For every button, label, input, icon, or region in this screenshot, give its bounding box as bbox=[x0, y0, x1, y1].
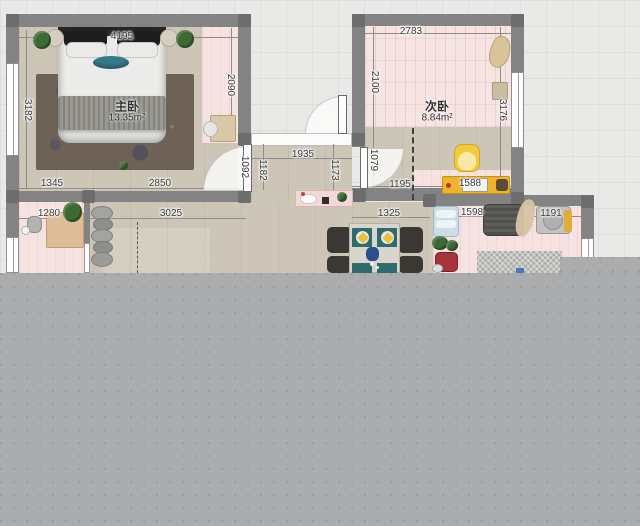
dim-hall-left: 1182 bbox=[257, 159, 267, 181]
plant-cluster bbox=[446, 240, 458, 251]
bed-pillow bbox=[66, 42, 107, 58]
dining-chair[interactable] bbox=[398, 227, 423, 253]
room-area-secondary: 8.84m² bbox=[421, 113, 452, 124]
dim-master-bottom-left: 1345 bbox=[41, 179, 63, 189]
entry-threshold bbox=[251, 133, 352, 146]
sofa-cushion bbox=[436, 210, 456, 218]
table-decor-dot bbox=[370, 262, 374, 266]
desk-red-dot bbox=[446, 183, 451, 188]
dim-lower-room-left: 1598 bbox=[461, 208, 483, 218]
dim-living: 3025 bbox=[160, 209, 182, 219]
dim-secondary-top: 2783 bbox=[400, 27, 422, 37]
wall-joint bbox=[82, 190, 95, 203]
wall-joint bbox=[511, 14, 524, 27]
canvas-cutoff-overlay bbox=[0, 273, 640, 526]
wall-master-top[interactable] bbox=[6, 14, 251, 27]
dim-balcony: 1280 bbox=[38, 209, 60, 219]
canvas-cutoff-overlay-right bbox=[560, 257, 640, 273]
dim-secondary-right: 3176 bbox=[497, 99, 507, 121]
wall-joint bbox=[238, 14, 251, 27]
dining-chair[interactable] bbox=[398, 256, 423, 273]
dim-master-left: 3182 bbox=[22, 99, 32, 121]
balcony-plant[interactable] bbox=[63, 202, 82, 222]
table-decor-dot bbox=[376, 266, 379, 269]
wall-joint bbox=[423, 194, 436, 207]
balcony-sliding-door[interactable] bbox=[84, 243, 90, 273]
dim-hall-top: 1935 bbox=[292, 150, 314, 160]
door-entry[interactable] bbox=[338, 95, 347, 134]
wall-joint bbox=[6, 190, 19, 203]
dim-line bbox=[365, 33, 511, 34]
living-rug[interactable] bbox=[103, 228, 210, 273]
side-table bbox=[432, 264, 443, 273]
window-lower-left[interactable] bbox=[6, 237, 19, 273]
wall-master-bottom[interactable] bbox=[6, 191, 251, 202]
cabinet-plant bbox=[337, 192, 347, 202]
wall-master-right[interactable] bbox=[238, 27, 251, 145]
window-master-left[interactable] bbox=[6, 63, 19, 156]
dim-secondary-left: 2100 bbox=[369, 71, 379, 93]
vanity-chair[interactable] bbox=[203, 121, 218, 137]
table-centerpiece bbox=[366, 247, 379, 261]
wall-secondary-left[interactable] bbox=[352, 26, 365, 147]
accent-pillow bbox=[93, 56, 129, 69]
room-area-master: 13.35m² bbox=[109, 113, 146, 124]
storage-box bbox=[492, 82, 508, 100]
wall-joint bbox=[352, 133, 365, 146]
dim-dining: 1325 bbox=[378, 209, 400, 219]
wall-joint bbox=[6, 14, 19, 27]
plant[interactable] bbox=[33, 31, 51, 49]
wall-joint bbox=[581, 195, 594, 208]
desk-chair-seat bbox=[458, 152, 476, 170]
dim-master-bottom-right: 2850 bbox=[149, 179, 171, 189]
dim-secondary-bottom-right: 1588 bbox=[459, 179, 481, 189]
floorplan-canvas: 主卧 13.35m² 次卧 8.84m² 4195 3182 2090 1345… bbox=[0, 0, 640, 526]
dim-master-top: 4195 bbox=[111, 32, 133, 42]
kitchen-appliance[interactable] bbox=[91, 252, 113, 267]
wall-joint bbox=[352, 14, 365, 27]
zone-divider-dashed bbox=[412, 128, 414, 200]
door-secondary-bedroom[interactable] bbox=[360, 147, 368, 189]
dim-master-right-inner: 2090 bbox=[225, 74, 235, 96]
desk-cup bbox=[496, 179, 508, 191]
cabinet-flower bbox=[301, 192, 305, 196]
dim-master-door: 1092 bbox=[239, 156, 249, 178]
dim-secondary-lower-left: 1079 bbox=[368, 149, 378, 171]
sofa-cushion bbox=[436, 220, 456, 228]
cabinet-decor-dark bbox=[322, 197, 329, 204]
window-secondary-right[interactable] bbox=[511, 72, 524, 148]
laundry-basket-yellow bbox=[564, 210, 572, 232]
dim-hall-right: 1173 bbox=[329, 159, 339, 181]
wall-secondary-top[interactable] bbox=[352, 14, 524, 26]
small-plant bbox=[119, 161, 128, 170]
bed-pillow bbox=[117, 42, 158, 58]
dim-secondary-bottom-left: 1195 bbox=[389, 180, 411, 190]
placemat bbox=[352, 263, 372, 273]
plant[interactable] bbox=[176, 30, 194, 48]
zone-divider-dashed bbox=[137, 222, 138, 273]
kettle bbox=[21, 226, 30, 235]
dim-lower-room-right: 1191 bbox=[540, 209, 562, 219]
wall-joint bbox=[352, 189, 366, 202]
placemat bbox=[377, 263, 397, 273]
